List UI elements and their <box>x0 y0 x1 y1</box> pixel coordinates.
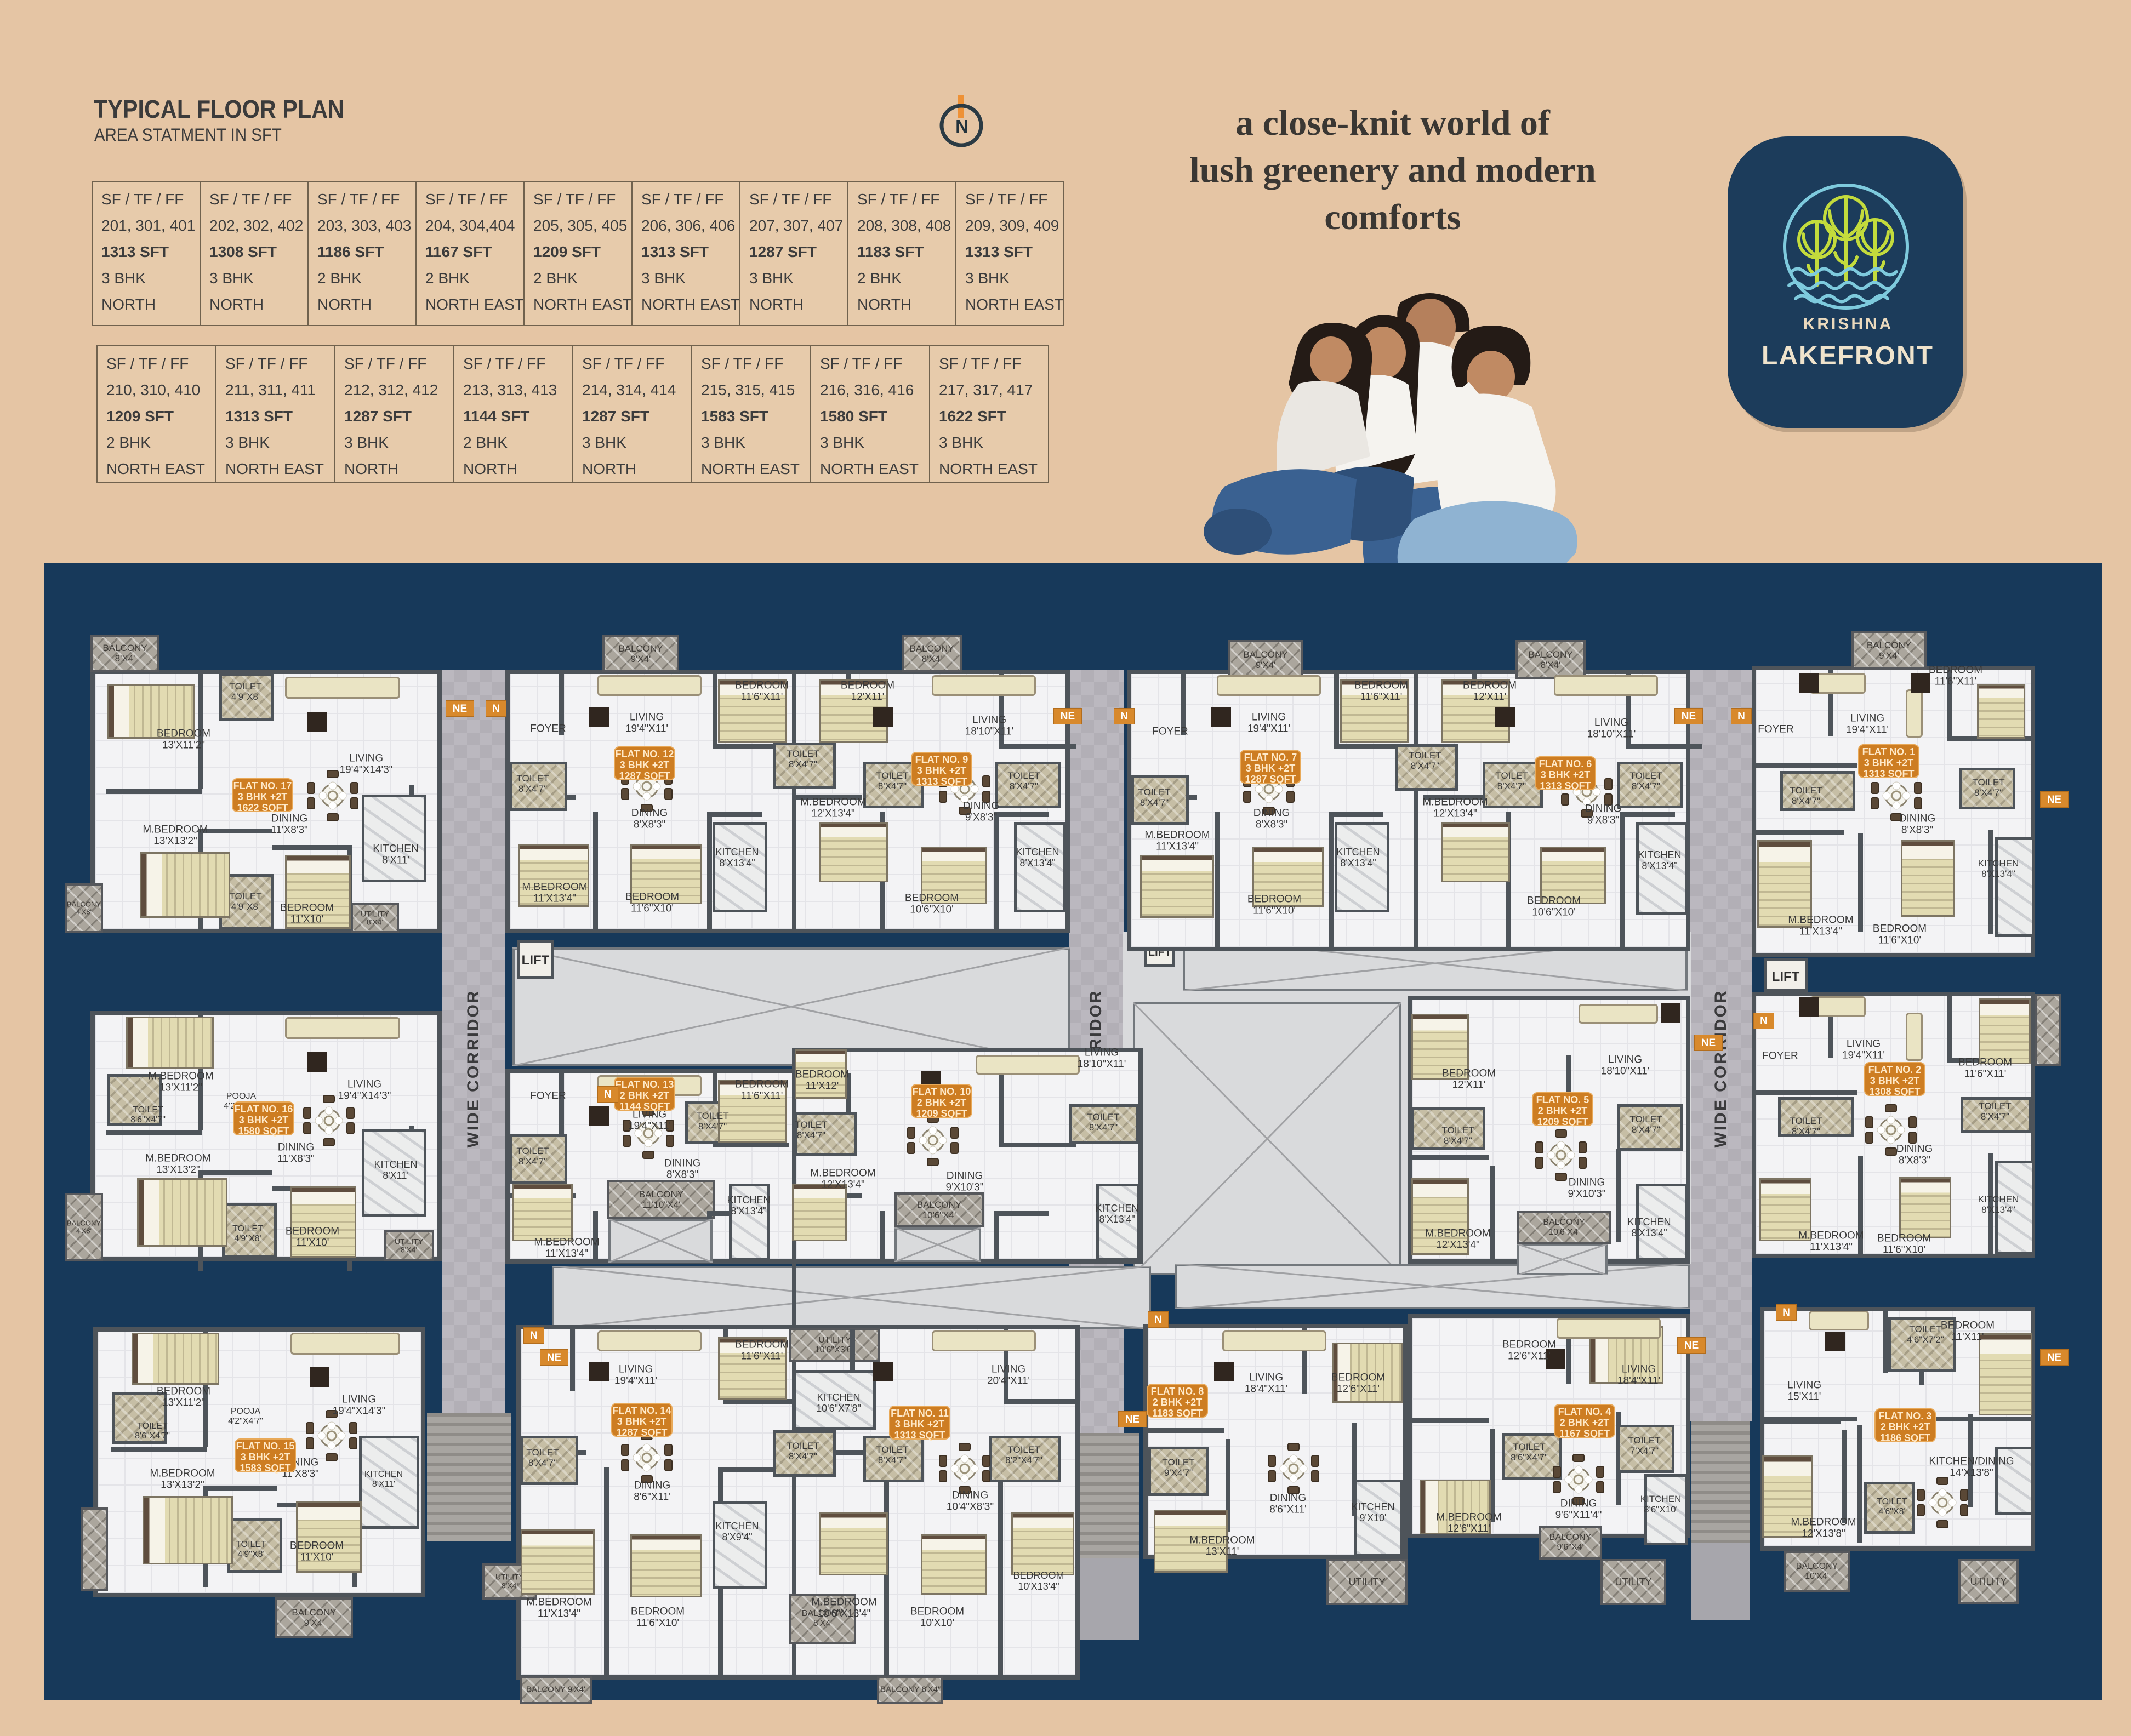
svg-text:N: N <box>955 116 968 136</box>
